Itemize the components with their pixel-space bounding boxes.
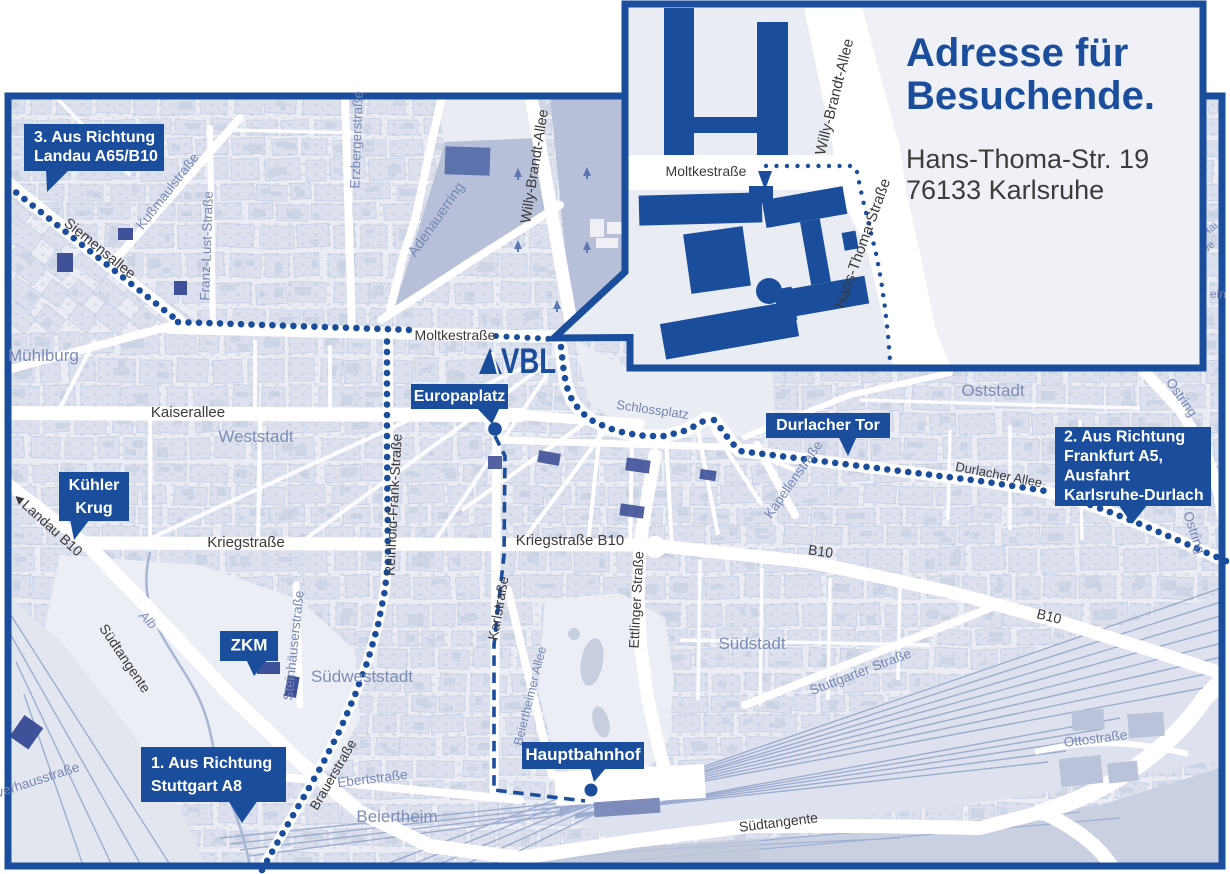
svg-text:Krug: Krug: [75, 500, 112, 517]
svg-text:Moltkestraße: Moltkestraße: [415, 327, 496, 343]
svg-text:Besuchende.: Besuchende.: [906, 74, 1155, 118]
svg-text:Oststadt: Oststadt: [961, 381, 1025, 400]
svg-text:Adresse für: Adresse für: [906, 31, 1128, 75]
svg-text:Europaplatz: Europaplatz: [414, 388, 506, 405]
svg-text:Kaiserallee: Kaiserallee: [151, 404, 225, 421]
svg-text:1. Aus Richtung: 1. Aus Richtung: [151, 755, 272, 772]
svg-text:Stuttgart A8: Stuttgart A8: [151, 778, 242, 795]
svg-text:Ausfahrt: Ausfahrt: [1064, 468, 1130, 485]
svg-text:ZKM: ZKM: [231, 636, 268, 655]
svg-text:VBL: VBL: [501, 342, 556, 381]
svg-text:Kriegstraße: Kriegstraße: [207, 534, 285, 551]
svg-text:Karlsruhe-Durlach: Karlsruhe-Durlach: [1064, 487, 1204, 504]
svg-text:3. Aus Richtung: 3. Aus Richtung: [34, 129, 155, 146]
svg-text:Durlacher Tor: Durlacher Tor: [776, 417, 880, 434]
svg-text:Kühler: Kühler: [69, 477, 120, 494]
svg-text:Hans-Thoma-Str. 19: Hans-Thoma-Str. 19: [906, 144, 1149, 174]
svg-text:Weststadt: Weststadt: [218, 427, 294, 446]
svg-text:Moltkestraße: Moltkestraße: [666, 163, 747, 179]
svg-text:2. Aus Richtung: 2. Aus Richtung: [1064, 429, 1185, 446]
svg-text:Frankfurt A5,: Frankfurt A5,: [1064, 448, 1163, 465]
svg-text:Beiertheim: Beiertheim: [356, 807, 437, 826]
svg-text:Mühlburg: Mühlburg: [8, 346, 79, 365]
svg-text:76133 Karlsruhe: 76133 Karlsruhe: [906, 175, 1104, 205]
svg-text:Südweststadt: Südweststadt: [311, 667, 413, 686]
svg-text:Hauptbahnhof: Hauptbahnhof: [525, 745, 641, 764]
svg-text:ein: ein: [1210, 287, 1226, 301]
svg-text:Südstadt: Südstadt: [718, 634, 785, 653]
svg-text:Landau A65/B10: Landau A65/B10: [34, 148, 158, 165]
svg-text:Kriegstraße B10: Kriegstraße B10: [516, 532, 624, 549]
